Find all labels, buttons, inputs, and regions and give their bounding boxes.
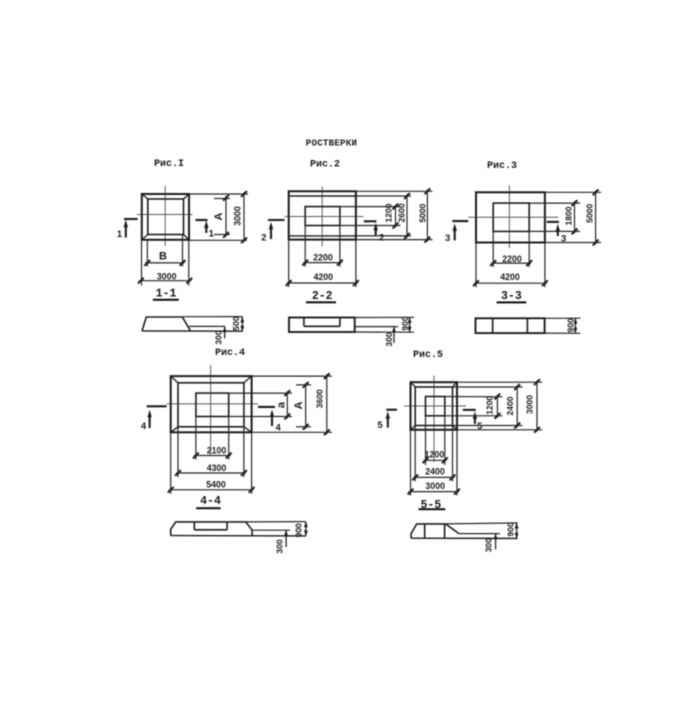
svg-text:900: 900 <box>294 523 304 537</box>
svg-text:2: 2 <box>261 233 266 244</box>
svg-text:1-1: 1-1 <box>156 288 177 301</box>
svg-text:5000: 5000 <box>417 203 427 222</box>
svg-text:1200: 1200 <box>485 396 495 415</box>
svg-text:3: 3 <box>445 233 450 244</box>
svg-text:3000: 3000 <box>157 272 177 282</box>
svg-text:1200: 1200 <box>384 203 394 222</box>
svg-text:900: 900 <box>565 318 575 332</box>
svg-text:4200: 4200 <box>314 272 334 282</box>
svg-text:2400: 2400 <box>425 466 445 476</box>
svg-text:300: 300 <box>483 538 493 552</box>
svg-text:900: 900 <box>505 522 515 536</box>
svg-text:3600: 3600 <box>314 389 324 408</box>
svg-text:Рис.2: Рис.2 <box>310 160 340 171</box>
svg-text:2200: 2200 <box>313 252 333 262</box>
svg-text:А: А <box>293 401 305 409</box>
svg-text:4200: 4200 <box>500 272 520 282</box>
svg-text:2200: 2200 <box>502 254 522 264</box>
svg-text:5: 5 <box>377 420 383 431</box>
svg-text:2400: 2400 <box>505 396 515 415</box>
svg-text:300: 300 <box>274 539 284 553</box>
svg-text:4300: 4300 <box>207 463 227 473</box>
svg-text:3-3: 3-3 <box>501 290 522 303</box>
svg-text:2100: 2100 <box>207 446 227 456</box>
svg-text:500: 500 <box>231 316 241 330</box>
svg-text:300: 300 <box>384 332 394 346</box>
svg-text:900: 900 <box>400 316 410 330</box>
svg-text:2600: 2600 <box>396 203 406 222</box>
svg-text:4: 4 <box>276 422 282 433</box>
svg-text:300: 300 <box>214 330 224 344</box>
svg-text:Рис.5: Рис.5 <box>413 350 443 361</box>
svg-text:1: 1 <box>117 229 123 240</box>
svg-text:1800: 1800 <box>564 206 574 225</box>
svg-text:В: В <box>159 251 167 263</box>
svg-text:3000: 3000 <box>233 206 243 226</box>
svg-text:Рис.I: Рис.I <box>154 159 184 170</box>
svg-text:3000: 3000 <box>525 395 535 414</box>
svg-text:5400: 5400 <box>206 480 226 490</box>
svg-text:1: 1 <box>209 229 215 240</box>
svg-text:А: А <box>213 212 225 220</box>
svg-text:4: 4 <box>141 421 147 432</box>
svg-text:Рис.4: Рис.4 <box>215 348 245 359</box>
svg-text:5000: 5000 <box>584 204 594 223</box>
svg-text:2-2: 2-2 <box>312 290 333 303</box>
svg-text:4-4: 4-4 <box>200 495 221 508</box>
svg-text:РОСТВЕРКИ: РОСТВЕРКИ <box>306 137 357 148</box>
svg-text:а: а <box>275 401 287 408</box>
svg-text:3000: 3000 <box>425 481 445 491</box>
svg-text:2: 2 <box>379 233 384 244</box>
svg-text:1200: 1200 <box>425 450 445 460</box>
svg-text:Рис.3: Рис.3 <box>487 161 517 172</box>
